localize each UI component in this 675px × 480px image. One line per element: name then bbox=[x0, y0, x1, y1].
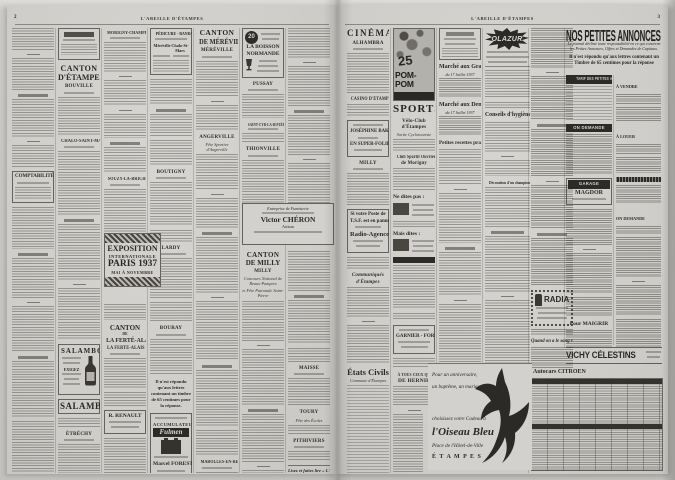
club-heading: Club Sportif Ouvrier bbox=[397, 155, 431, 161]
subtitle bbox=[64, 92, 93, 94]
text-lines bbox=[196, 370, 238, 426]
text-lines bbox=[155, 38, 187, 40]
subtitle bbox=[248, 155, 277, 157]
text-lines bbox=[413, 209, 433, 211]
text-lines bbox=[485, 160, 530, 176]
column-rule bbox=[239, 28, 240, 473]
text-lines bbox=[196, 472, 238, 473]
footer-note: Lisez et faites lire « L'Abeille » dans … bbox=[288, 465, 330, 473]
subtitle bbox=[202, 467, 231, 469]
text-lines bbox=[173, 55, 190, 57]
classified-lines bbox=[616, 107, 661, 121]
text-lines bbox=[485, 122, 530, 152]
column-rule bbox=[101, 28, 102, 473]
heading-line: CANTON bbox=[104, 324, 146, 332]
ad-title: SALAMBO bbox=[60, 401, 98, 412]
separator bbox=[546, 181, 559, 182]
text-lines bbox=[488, 61, 526, 63]
olazur-ad: OLAZUR bbox=[485, 28, 530, 67]
text-lines bbox=[150, 182, 192, 226]
commune-heading: MÉRÉVILLE bbox=[196, 48, 238, 54]
text-lines bbox=[485, 70, 530, 98]
ad-title: R. RENAULT bbox=[107, 413, 143, 420]
text-lines bbox=[242, 133, 284, 143]
column-rule bbox=[482, 28, 483, 363]
text-lines bbox=[150, 302, 192, 322]
ad-title: LA BOISSON bbox=[245, 44, 281, 51]
rule bbox=[485, 66, 530, 67]
article-subtitle: Concours National de Beaux-Pampres bbox=[242, 276, 284, 286]
text-lines bbox=[153, 55, 170, 57]
column-7: MAISSE TOURY Fête des Écoles PITHIVIERS … bbox=[288, 28, 330, 473]
pedicure-ad: PÉDICURE - BANDAGISTE Méréville Chalo-St… bbox=[150, 28, 192, 75]
tarif-bar: TARIF DES PETITES ANNONCES bbox=[566, 75, 612, 84]
heading-line: CANTON bbox=[58, 64, 100, 73]
text-lines bbox=[439, 149, 481, 185]
ad-title: PÉDICURE - BANDAGISTE bbox=[156, 31, 187, 37]
text-lines bbox=[104, 358, 146, 388]
text-lines bbox=[104, 114, 146, 138]
text-lines bbox=[12, 99, 54, 137]
separator bbox=[211, 101, 224, 102]
text-lines bbox=[196, 61, 238, 97]
classified-lines bbox=[566, 253, 612, 293]
salambo-ad: SALAMBO EXIGEZ bbox=[58, 344, 100, 395]
column-rule bbox=[285, 28, 286, 473]
market-heading: Marché aux Grains bbox=[439, 64, 481, 72]
article-subtitle: Sortie Cyclotouriste bbox=[393, 132, 435, 137]
text-lines bbox=[398, 341, 430, 343]
etats-civils-heading: États Civils bbox=[347, 367, 389, 378]
heading-line: CANTON bbox=[242, 251, 284, 259]
article-subtitle: Commune d'Étampes bbox=[347, 378, 389, 383]
column-rule bbox=[193, 28, 194, 473]
text-lines bbox=[288, 425, 330, 435]
ad-text: Entreprise de Fumisterie bbox=[245, 206, 331, 211]
expo-paris-ad: EXPOSITION INTERNATIONALE PARIS 1937 MAI… bbox=[104, 233, 161, 287]
commune-heading: MAROLLES-EN-BEAUCE bbox=[201, 460, 234, 466]
column-4: OLAZUR Conseils d'hygiène Décoration d'u… bbox=[485, 28, 530, 363]
section-heading: SPORTS bbox=[393, 103, 435, 117]
text-lines bbox=[196, 154, 238, 190]
table-header-band bbox=[532, 379, 662, 384]
cinema-heading: MILLY bbox=[347, 161, 389, 167]
maigrir-heading: Pour MAIGRIR bbox=[566, 321, 612, 328]
ad-text: Si votre Poste de bbox=[350, 212, 386, 219]
header-rule bbox=[15, 24, 329, 25]
text-lines bbox=[401, 346, 428, 348]
text-lines bbox=[347, 287, 389, 317]
npa-disclaimer: Le journal décline toute responsabilité … bbox=[566, 41, 662, 51]
small-heading bbox=[202, 365, 232, 368]
small-heading bbox=[294, 110, 324, 113]
text-lines bbox=[412, 214, 434, 216]
cheron-ad: Entreprise de Fumisterie Victor CHÉRON A… bbox=[242, 203, 334, 245]
text-lines bbox=[616, 144, 661, 154]
dark-band bbox=[394, 92, 434, 100]
ad-title: Marcel FOREST bbox=[153, 461, 189, 468]
canton-ferte-heading: CANTON DE LA FERTÉ-ALAIS bbox=[104, 324, 146, 344]
small-heading bbox=[202, 232, 232, 235]
text-lines bbox=[646, 351, 661, 353]
ad-title: SALAMBO bbox=[61, 347, 97, 355]
josephine-baker-ad: JOSÉPHINE BAKER EN SUPER-FOLIES bbox=[347, 120, 389, 156]
subtitle bbox=[110, 37, 139, 39]
canton-etampes-heading: CANTON D'ÉTAMPES bbox=[58, 64, 100, 82]
entry-lead: À LOUER bbox=[616, 134, 635, 139]
ad-title: OLAZUR bbox=[492, 36, 523, 43]
text-lines bbox=[12, 306, 54, 352]
on-demande-bar: ON DEMANDE bbox=[566, 124, 612, 133]
text-lines bbox=[104, 392, 146, 406]
cinema-heading: CASINO D'ÉTAMPES bbox=[351, 97, 385, 103]
text-lines bbox=[439, 252, 481, 296]
text-lines bbox=[347, 257, 389, 269]
text-lines bbox=[196, 237, 238, 293]
separator bbox=[211, 297, 224, 298]
text-lines bbox=[12, 258, 54, 298]
text-lines bbox=[616, 226, 661, 234]
battery-icon bbox=[161, 440, 181, 454]
commune-heading: TOURY bbox=[288, 410, 330, 416]
deco-band bbox=[105, 234, 160, 243]
ad-text: MAI À NOVEMBRE bbox=[105, 270, 160, 276]
club-heading: de Morigny bbox=[393, 161, 435, 167]
heading-line: DE MILLY bbox=[242, 259, 284, 267]
commune-heading: PUSSAY bbox=[242, 82, 284, 88]
market-heading: Marché aux Denrées bbox=[439, 102, 481, 110]
canton-mereville-heading: CANTON DE MÉRÉVILLE bbox=[196, 29, 238, 46]
text-lines bbox=[62, 373, 80, 375]
classified-lines bbox=[616, 185, 661, 203]
separator bbox=[27, 54, 40, 55]
text-lines bbox=[445, 43, 475, 45]
separator bbox=[408, 410, 421, 411]
text-lines bbox=[58, 151, 100, 215]
entry-lead: ON DEMANDE bbox=[616, 216, 645, 221]
text-lines bbox=[63, 383, 80, 385]
right-page: L'ABEILLE D'ÉTAMPES 3 CINÉMAS ALHAMBRA C… bbox=[337, 5, 668, 474]
text-lines bbox=[150, 339, 192, 375]
newspaper-title: L'ABEILLE D'ÉTAMPES bbox=[7, 16, 337, 21]
npa-masthead: NOS PETITES ANNONCES bbox=[566, 22, 662, 40]
text-lines bbox=[288, 378, 330, 406]
club-heading: Vélo-Club d'Étampes bbox=[393, 119, 435, 132]
commune-heading: MILLY bbox=[242, 269, 284, 275]
text-lines bbox=[64, 378, 79, 380]
subtitle bbox=[64, 439, 93, 441]
hernie-heading: À TOUS CEUX QUI SOUFFRENT bbox=[398, 372, 431, 378]
separator bbox=[257, 345, 270, 346]
mais-dites: Mais dites : bbox=[393, 231, 435, 238]
conseils-heading: Conseils d'hygiène bbox=[485, 112, 530, 120]
separator bbox=[73, 284, 86, 285]
blue-bird-icon bbox=[472, 366, 530, 466]
text-lines bbox=[356, 245, 380, 247]
text-lines bbox=[393, 414, 423, 473]
small-heading bbox=[248, 409, 278, 412]
text-lines bbox=[439, 304, 481, 363]
text-lines bbox=[347, 53, 389, 93]
price-table bbox=[439, 78, 481, 98]
text-lines bbox=[485, 300, 530, 363]
separator bbox=[257, 466, 270, 467]
text-lines bbox=[485, 187, 530, 227]
column-5: CANTON DE MÉRÉVILLE MÉRÉVILLE ANGERVILLE… bbox=[196, 28, 238, 473]
text-lines bbox=[616, 94, 661, 104]
entry-lead: À VENDRE bbox=[616, 84, 638, 89]
ad-text: Pour un anniversaire, bbox=[432, 372, 477, 379]
small-heading bbox=[18, 253, 48, 256]
separator bbox=[501, 296, 514, 297]
text-lines bbox=[196, 198, 238, 228]
text-lines bbox=[63, 39, 95, 41]
text-lines bbox=[486, 56, 529, 58]
article-subtitle: et Fête Patronale Saint-Pierre bbox=[242, 288, 284, 298]
oiseau-bleu-ad: Pour un anniversaire, un baptême, un mar… bbox=[428, 363, 532, 470]
heading-line: DE MÉRÉVILLE bbox=[199, 38, 235, 47]
classified-lines bbox=[566, 330, 612, 347]
text-lines bbox=[58, 224, 100, 280]
separator bbox=[362, 321, 375, 322]
tariff-lines bbox=[566, 86, 612, 120]
text-lines bbox=[412, 250, 433, 252]
separator bbox=[119, 76, 132, 77]
column-1: CINÉMAS ALHAMBRA CASINO D'ÉTAMPES JOSÉPH… bbox=[347, 28, 389, 473]
subtitle bbox=[248, 89, 277, 91]
small-heading bbox=[110, 142, 140, 145]
classified-entry: À LOUER bbox=[616, 125, 661, 154]
boisson-normande-ad: 20 LA BOISSON NORMANDE bbox=[242, 28, 284, 78]
text-lines bbox=[399, 329, 430, 331]
text-lines bbox=[537, 317, 568, 319]
text-lines bbox=[242, 301, 284, 341]
classified-entry: À VENDRE bbox=[616, 75, 661, 104]
text-lines bbox=[61, 44, 97, 55]
ad-title bbox=[64, 32, 95, 37]
boxed-notice-ad bbox=[439, 28, 481, 60]
separator bbox=[211, 194, 224, 195]
text-lines bbox=[393, 313, 435, 321]
text-lines bbox=[347, 385, 389, 473]
small-heading bbox=[491, 231, 523, 234]
pom-pom-price: 25 bbox=[397, 53, 413, 67]
text-lines bbox=[262, 38, 280, 40]
text-lines bbox=[288, 28, 330, 58]
separator bbox=[501, 156, 514, 157]
heading-line: LA FERTÉ-ALAIS bbox=[106, 337, 144, 344]
ad-text: Artisan bbox=[245, 224, 331, 229]
page-number: 3 bbox=[658, 15, 661, 20]
column-6: 20 LA BOISSON NORMANDE bbox=[242, 28, 284, 473]
comptabilite-ad: COMPTABILITÉ bbox=[12, 171, 54, 203]
text-lines bbox=[12, 207, 54, 249]
classified-lines bbox=[616, 319, 661, 347]
classified-lines bbox=[566, 134, 612, 174]
column-6: TARIF DES PETITES ANNONCES ON DEMANDE GA… bbox=[566, 75, 612, 347]
ad-title: PARIS 1937 bbox=[105, 259, 160, 270]
ad-title: COMPTABILITÉ bbox=[15, 174, 51, 181]
cider-glass-icon bbox=[245, 59, 253, 71]
text-lines bbox=[355, 226, 380, 228]
text-lines bbox=[647, 356, 660, 358]
subtitle bbox=[156, 177, 185, 179]
classified-lines bbox=[616, 157, 661, 173]
subtitle bbox=[156, 334, 185, 336]
commune-heading: SOUZY-LA-BRICHE bbox=[108, 177, 142, 183]
text-lines bbox=[538, 312, 567, 314]
classified-lines bbox=[566, 209, 612, 245]
subtitle bbox=[353, 48, 382, 50]
column-2: CANTON D'ÉTAMPES BOUVILLE CHALO-SAINT-MA… bbox=[58, 28, 100, 473]
text-lines bbox=[104, 147, 146, 173]
commune-heading: THIONVILLE bbox=[242, 147, 284, 153]
communiques-heading: Communiqués d'Étampes bbox=[347, 273, 389, 286]
text-lines bbox=[288, 451, 330, 461]
pom-pom-ad: 25 POM-POM bbox=[393, 28, 435, 101]
hotel-ad bbox=[58, 28, 100, 60]
recettes-heading: Petites recettes pratiques bbox=[439, 140, 481, 147]
text-lines bbox=[393, 139, 435, 151]
small-heading bbox=[156, 109, 186, 112]
text-lines bbox=[157, 470, 186, 472]
decoration-heading: Décoration d'un champion bbox=[489, 180, 526, 186]
text-lines bbox=[536, 307, 567, 309]
text-lines bbox=[12, 58, 54, 90]
text-lines bbox=[104, 438, 146, 473]
ad-title: MAGDOR bbox=[568, 190, 610, 197]
commune-heading: LA FERTÉ-ALAIS bbox=[107, 346, 143, 352]
ad-title: EN SUPER-FOLIES bbox=[350, 142, 386, 148]
column-3: Marché aux Grains du 17 Juillet 1937 Mar… bbox=[439, 28, 481, 363]
text-lines bbox=[242, 349, 284, 405]
subtitle bbox=[110, 353, 139, 355]
text-lines bbox=[259, 60, 277, 62]
text-lines bbox=[288, 251, 330, 291]
ad-text: ACCUMULATEURS bbox=[153, 422, 189, 428]
text-lines bbox=[12, 361, 54, 417]
figure-icon bbox=[535, 294, 542, 306]
text-lines bbox=[288, 115, 330, 155]
deco-band bbox=[105, 277, 160, 286]
separator bbox=[303, 159, 316, 160]
salambo-ad-bottom: SALAMBO bbox=[58, 399, 100, 414]
text-lines bbox=[444, 38, 476, 40]
text-lines bbox=[62, 357, 81, 359]
text-lines bbox=[347, 325, 389, 363]
text-lines bbox=[63, 362, 80, 364]
commune-heading: ÉTRÉCHY bbox=[58, 432, 100, 438]
text-lines bbox=[242, 160, 284, 205]
subtitle bbox=[202, 56, 231, 58]
small-heading bbox=[445, 247, 475, 250]
small-heading bbox=[537, 233, 567, 236]
price-table bbox=[439, 116, 481, 136]
cartoon-image bbox=[393, 239, 409, 251]
olazur-logo: OLAZUR bbox=[485, 28, 529, 50]
canton-milly-heading: CANTON DE MILLY bbox=[242, 251, 284, 267]
commune-heading: SAINT-CYR-LA-RIVIÈRE bbox=[248, 122, 278, 127]
text-lines bbox=[572, 198, 606, 200]
text-lines bbox=[439, 193, 481, 243]
article-subtitle: Fête des Écoles bbox=[288, 418, 330, 423]
subtitle bbox=[110, 184, 139, 186]
text-lines bbox=[242, 470, 284, 473]
ad-title: NORMANDE bbox=[245, 51, 281, 58]
timetable bbox=[531, 378, 663, 471]
note-line: Lisez et faites lire « L'Abeille » bbox=[288, 468, 330, 473]
text-lines bbox=[12, 421, 54, 474]
ad-title bbox=[446, 32, 475, 36]
text-lines bbox=[153, 60, 189, 72]
dark-banner bbox=[393, 257, 435, 263]
separator bbox=[546, 72, 559, 73]
ad-title: VICHY CÉLESTINS bbox=[566, 351, 636, 361]
separator bbox=[119, 110, 132, 111]
text-lines bbox=[353, 124, 383, 126]
text-lines bbox=[288, 66, 330, 106]
text-lines bbox=[487, 51, 528, 53]
vichy-ad: VICHY CÉLESTINS bbox=[566, 347, 662, 364]
autocars-heading: Autocars CITROEN bbox=[533, 369, 586, 376]
separator bbox=[632, 281, 645, 282]
text-lines bbox=[58, 288, 100, 340]
small-heading bbox=[537, 124, 567, 127]
text-lines bbox=[104, 304, 146, 320]
commune-heading: BOUVILLE bbox=[58, 84, 100, 90]
text-lines bbox=[12, 28, 54, 50]
column-rule bbox=[436, 28, 437, 363]
column-rule bbox=[390, 28, 391, 473]
text-lines bbox=[288, 348, 330, 362]
ad-title: GARNIER - FOREST bbox=[396, 334, 432, 341]
column-rule bbox=[613, 75, 614, 345]
cinema-heading: ALHAMBRA bbox=[347, 41, 389, 47]
table-header-band bbox=[532, 424, 662, 429]
text-lines bbox=[104, 42, 146, 72]
text-lines bbox=[358, 137, 379, 139]
small-heading bbox=[294, 295, 324, 298]
commune-heading: BOURAY bbox=[150, 326, 192, 332]
npa-notice: Il n'est répondu qu'aux lettres contenan… bbox=[568, 55, 660, 68]
cartoon-image bbox=[393, 203, 409, 215]
ad-title: JOSÉPHINE BAKER bbox=[350, 129, 386, 135]
text-lines bbox=[109, 421, 141, 423]
text-lines bbox=[111, 426, 139, 428]
badge-20: 20 bbox=[245, 31, 258, 44]
text-lines bbox=[485, 102, 530, 108]
text-lines bbox=[242, 414, 284, 462]
radio-agence-ad: Si votre Poste de T.S.F. est en panne Ra… bbox=[347, 209, 389, 253]
commune-heading: BOUTIGNY bbox=[150, 170, 192, 176]
text-lines bbox=[393, 168, 435, 190]
text-lines bbox=[58, 444, 100, 473]
text-lines bbox=[154, 456, 187, 458]
classified-lines bbox=[616, 285, 661, 315]
separator bbox=[303, 62, 316, 63]
garnier-forest-ad: GARNIER - FOREST bbox=[393, 325, 435, 355]
separator bbox=[454, 300, 467, 301]
text-lines bbox=[354, 149, 383, 151]
text-lines bbox=[104, 189, 146, 238]
classified-lines bbox=[566, 297, 612, 317]
heading-line: D'ÉTAMPES bbox=[58, 73, 100, 82]
text-lines bbox=[150, 140, 192, 166]
town-name: Méréville bbox=[153, 43, 171, 54]
small-heading bbox=[18, 94, 48, 97]
text-lines bbox=[412, 240, 434, 242]
commune-heading: ANGERVILLE bbox=[196, 135, 238, 141]
